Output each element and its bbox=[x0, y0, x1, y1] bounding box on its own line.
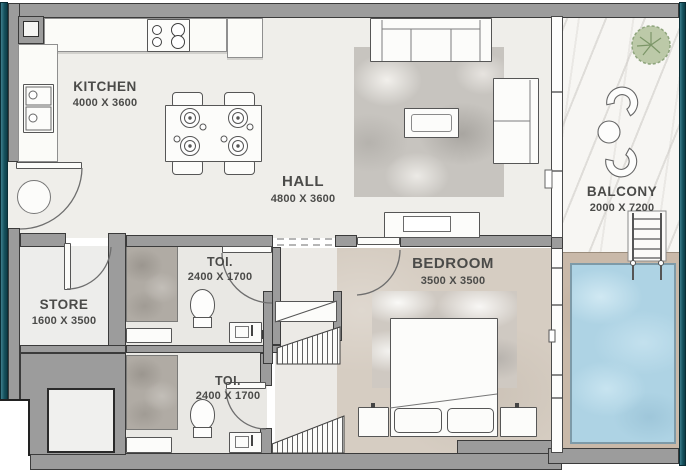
toilet-bottom-name: TOI. bbox=[176, 373, 280, 389]
store-dims: 1600 X 3500 bbox=[8, 314, 120, 328]
stair-wall-left bbox=[263, 291, 273, 364]
wall-store-right bbox=[108, 233, 126, 353]
toilet-top-label: TOI. 2400 X 1700 bbox=[168, 254, 272, 285]
bedroom-name: BEDROOM bbox=[391, 254, 515, 274]
bath-cabinet-top bbox=[126, 328, 172, 343]
store-name: STORE bbox=[8, 296, 120, 314]
wall-toilet-top-right bbox=[272, 247, 281, 345]
toilet-top-door-leaf bbox=[222, 246, 272, 253]
wall-top bbox=[8, 3, 679, 18]
hall-label: HALL 4800 X 3600 bbox=[243, 172, 363, 206]
tv-screen bbox=[403, 216, 451, 232]
entry-round-table bbox=[17, 180, 51, 214]
wall-pool-bottom bbox=[548, 448, 679, 464]
stair-corridor-floor bbox=[275, 248, 337, 453]
bath-cabinet-bottom bbox=[126, 437, 172, 453]
dining-table bbox=[165, 105, 262, 162]
stair-landing-box bbox=[275, 301, 337, 322]
kitchen-name: KITCHEN bbox=[45, 78, 165, 96]
stove bbox=[147, 19, 190, 52]
kitchen-tall-unit bbox=[227, 18, 263, 58]
kitchen-counter-top bbox=[44, 18, 227, 52]
armchair bbox=[493, 78, 539, 164]
wall-hall-south-b bbox=[335, 235, 357, 247]
nightstand-knob bbox=[371, 403, 375, 408]
wall-store-bottom bbox=[20, 345, 126, 353]
floor-plan: KITCHEN 4000 X 3600 HALL 4800 X 3600 BAL… bbox=[0, 0, 688, 471]
exterior-step-mask bbox=[0, 399, 30, 456]
bedroom-pool-window bbox=[551, 248, 563, 453]
vanity-top-basin bbox=[235, 326, 249, 338]
balcony-marble-floor bbox=[552, 16, 680, 254]
pillow bbox=[447, 408, 494, 433]
pool-water bbox=[570, 263, 676, 444]
dashed-opening bbox=[277, 239, 333, 245]
kitchen-dims: 4000 X 3600 bbox=[45, 96, 165, 110]
left-edge-band bbox=[0, 2, 8, 400]
bedroom-label: BEDROOM 3500 X 3500 bbox=[391, 254, 515, 288]
coffee-table-inner bbox=[411, 114, 452, 132]
bedroom-dims: 3500 X 3500 bbox=[391, 274, 515, 288]
nightstand-right bbox=[500, 407, 537, 437]
balcony-name: BALCONY bbox=[560, 183, 684, 201]
store-door-leaf bbox=[64, 243, 71, 290]
bedroom-door-leaf bbox=[357, 237, 400, 245]
vanity-bottom-tap bbox=[251, 435, 253, 446]
wc-bottom-tank bbox=[193, 427, 212, 438]
vanity-bottom-basin bbox=[235, 436, 249, 448]
balcony-dims: 2000 X 7200 bbox=[560, 201, 684, 215]
nightstand-left bbox=[358, 407, 389, 437]
corner-column-core bbox=[23, 21, 39, 37]
nightstand-knob bbox=[515, 403, 519, 408]
toilet-bottom-dims: 2400 X 1700 bbox=[176, 389, 280, 403]
shower-area-bottom bbox=[126, 355, 178, 430]
wall-bottom bbox=[30, 453, 562, 470]
toilet-top-name: TOI. bbox=[168, 254, 272, 270]
wall-store-top-left bbox=[20, 233, 66, 247]
pillow bbox=[394, 408, 442, 433]
entrance-door-leaf bbox=[16, 162, 82, 169]
right-edge-band bbox=[679, 2, 686, 466]
balcony-label: BALCONY 2000 X 7200 bbox=[560, 183, 684, 215]
hall-name: HALL bbox=[243, 172, 363, 192]
toilet-bottom-label: TOI. 2400 X 1700 bbox=[176, 373, 280, 404]
sofa bbox=[370, 18, 492, 62]
wc-bottom bbox=[190, 399, 215, 430]
wall-toilets-divider bbox=[126, 345, 281, 353]
wc-top bbox=[190, 289, 215, 320]
store-label: STORE 1600 X 3500 bbox=[8, 296, 120, 328]
wc-top-tank bbox=[193, 317, 212, 328]
vanity-top-tap bbox=[251, 325, 253, 336]
kitchen-label: KITCHEN 4000 X 3600 bbox=[45, 78, 165, 110]
toilet-top-dims: 2400 X 1700 bbox=[168, 270, 272, 284]
utility-duct bbox=[47, 388, 115, 453]
hall-dims: 4800 X 3600 bbox=[243, 192, 363, 206]
